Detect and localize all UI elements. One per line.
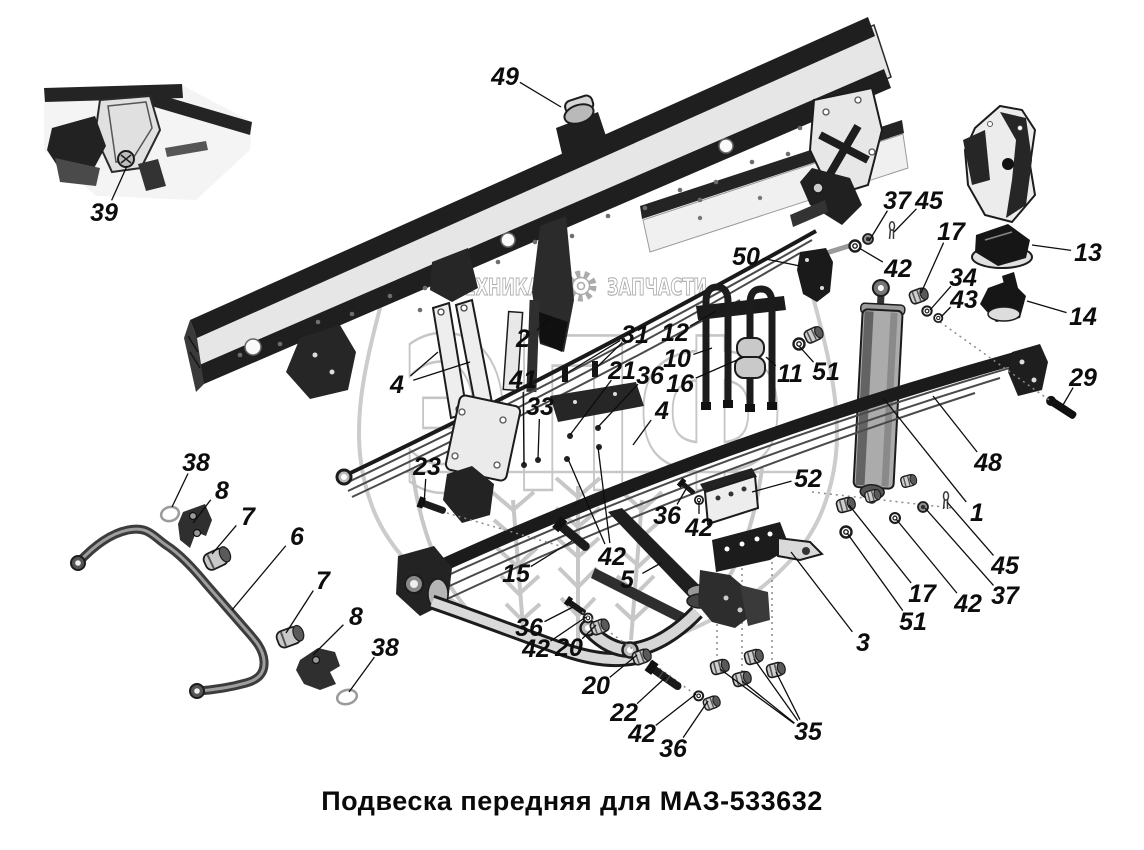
- shackle-bolt-29: [1044, 394, 1078, 421]
- callout-number: 12: [661, 319, 689, 347]
- callout-number: 50: [732, 243, 760, 271]
- callout-number: 36: [659, 735, 688, 763]
- callout-38: 38: [172, 449, 210, 507]
- callout-number: 17: [937, 218, 966, 246]
- callout-51: 51: [799, 346, 840, 386]
- stabilizer-bar: [71, 504, 358, 706]
- callout-number: 23: [412, 453, 441, 481]
- callout-number: 42: [521, 635, 550, 663]
- callout-42: 42: [859, 248, 912, 283]
- callout-29: 29: [1063, 364, 1097, 405]
- callout-number: 7: [241, 503, 256, 531]
- callout-number: 41: [508, 366, 537, 394]
- callout-7: 7: [212, 503, 256, 554]
- callout-number: 15: [502, 560, 531, 588]
- bump-stop-14: [980, 272, 1026, 322]
- callout-number: 37: [991, 582, 1020, 610]
- callout-number: 45: [990, 552, 1020, 580]
- callout-48: 48: [933, 396, 1002, 477]
- callout-number: 42: [883, 255, 912, 283]
- callout-number: 51: [812, 358, 840, 386]
- callout-number: 42: [684, 514, 713, 542]
- page-title: Подвеска передняя для МАЗ-533632: [0, 786, 1144, 817]
- inset-detail: [44, 84, 252, 200]
- callout-49: 49: [490, 63, 561, 107]
- callout-38: 38: [349, 634, 399, 692]
- callout-number: 38: [371, 634, 399, 662]
- callout-1: 1: [884, 399, 984, 527]
- callout-36: 36: [659, 701, 708, 763]
- suspension-diagram: ЭПФ ТЕХНИКА ЗАПЧАСТИ: [0, 0, 1144, 850]
- shock-upper-bracket: [797, 245, 852, 302]
- callout-8: 8: [313, 603, 363, 655]
- callout-number: 14: [1069, 303, 1097, 331]
- callout-7: 7: [286, 567, 331, 633]
- callout-number: 16: [666, 370, 695, 398]
- callout-number: 8: [215, 477, 229, 505]
- callout-number: 4: [389, 371, 404, 399]
- callout-number: 10: [663, 345, 691, 373]
- callout-number: 39: [90, 199, 118, 227]
- callout-number: 37: [883, 187, 912, 215]
- callout-number: 13: [1074, 239, 1102, 267]
- callout-number: 45: [914, 187, 944, 215]
- callout-number: 35: [794, 718, 823, 746]
- callout-number: 31: [621, 321, 649, 349]
- callout-13: 13: [1032, 239, 1102, 267]
- callout-number: 51: [899, 608, 927, 636]
- callout-number: 20: [581, 672, 610, 700]
- bump-stop-13: [972, 224, 1032, 268]
- callout-number: 52: [794, 465, 822, 493]
- callout-number: 48: [973, 449, 1002, 477]
- callout-number: 43: [949, 286, 978, 314]
- callout-number: 36: [636, 362, 665, 390]
- callout-number: 29: [1068, 364, 1097, 392]
- callout-14: 14: [1027, 301, 1097, 331]
- callout-number: 6: [290, 523, 305, 551]
- callout-3: 3: [791, 552, 870, 657]
- callout-number: 1: [970, 499, 984, 527]
- callout-number: 4: [654, 397, 669, 425]
- cab-mount-bracket: [963, 106, 1035, 222]
- callout-number: 11: [777, 360, 803, 388]
- callout-6: 6: [232, 523, 305, 610]
- callout-number: 36: [653, 502, 682, 530]
- callout-number: 5: [620, 566, 635, 594]
- callout-number: 17: [908, 580, 937, 608]
- callout-8: 8: [193, 477, 229, 523]
- callout-number: 7: [316, 567, 331, 595]
- callout-number: 3: [856, 629, 870, 657]
- diagram-page: ЭПФ ТЕХНИКА ЗАПЧАСТИ: [0, 0, 1144, 850]
- callout-number: 38: [182, 449, 210, 477]
- callout-number: 2: [515, 325, 530, 353]
- callout-number: 8: [349, 603, 363, 631]
- callout-number: 33: [526, 393, 554, 421]
- callout-number: 49: [490, 63, 519, 91]
- callout-number: 42: [953, 590, 982, 618]
- callout-number: 42: [627, 720, 656, 748]
- callout-number: 20: [554, 634, 583, 662]
- callout-number: 21: [607, 357, 636, 385]
